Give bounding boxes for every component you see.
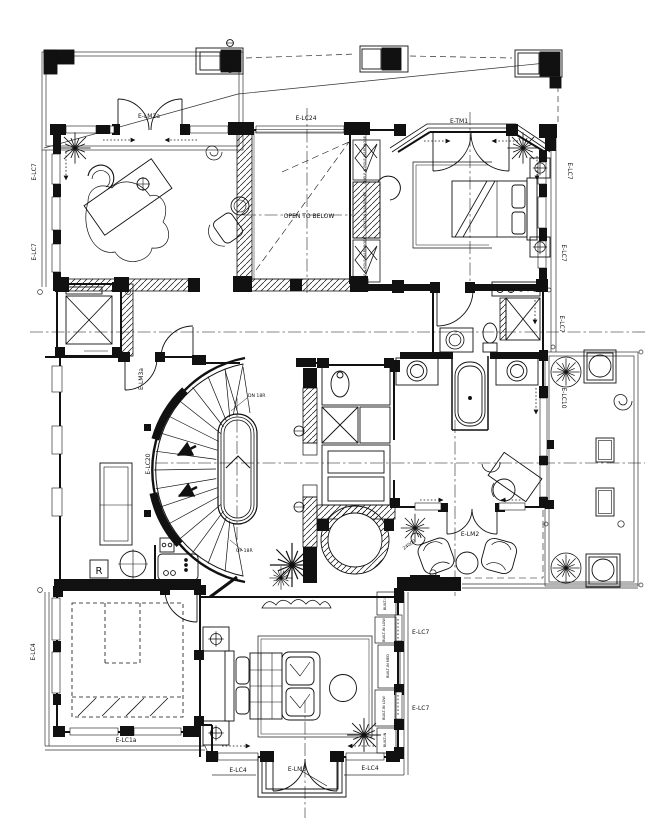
tag-lc7: E-LC7 <box>560 244 567 261</box>
labels: E-LM2a E-LC24 E-TM1 E-LC7 E-LC7 E-LC7 E-… <box>30 113 573 774</box>
round-feature <box>321 506 389 574</box>
bottom-left-room <box>72 603 183 717</box>
plant-icon <box>59 132 90 163</box>
tag-lc1a: E-LC1a <box>116 737 137 744</box>
windows <box>52 126 547 760</box>
corridor-door <box>161 326 193 358</box>
exterior-boundary <box>38 52 643 775</box>
refrigerator-label: R <box>96 566 103 577</box>
tag-lc4: E-LC4 <box>361 765 378 772</box>
kitchenette <box>90 463 198 580</box>
tag-lc7: E-LC7 <box>31 163 38 180</box>
cabinet-label: BUILT-IN <box>383 595 387 610</box>
stairs-down-note: DN 18R <box>248 393 266 399</box>
elevator <box>66 287 112 351</box>
terrace-furniture <box>415 350 624 587</box>
tag-lc7: E-LC7 <box>31 243 38 260</box>
tag-lc4: E-LC4 <box>30 643 37 660</box>
tag-lc24: E-LC24 <box>295 115 316 122</box>
wicker-chair <box>415 535 456 576</box>
upper-columns <box>44 40 562 88</box>
wicker-chair <box>479 536 518 575</box>
study-furniture <box>84 146 249 262</box>
tag-lc4: E-LC4 <box>229 767 246 774</box>
palm-plant-icon <box>551 553 581 583</box>
wardrobe-label: SHELF & POLE WARDROBE <box>363 236 367 285</box>
fern-icon <box>269 566 292 589</box>
plant-icon <box>347 718 381 752</box>
small-bath <box>440 282 540 352</box>
master-bedroom-furniture <box>353 140 550 282</box>
stairs-up-note: UP 18R <box>236 548 253 554</box>
hatched-walls <box>55 128 506 547</box>
doors <box>118 99 509 791</box>
tag-hall-door: E-LM3a <box>138 368 145 390</box>
floor-plan-page: E-LM2a E-LC24 E-TM1 E-LC7 E-LC7 E-LC7 E-… <box>0 0 650 840</box>
cabinet-label: BUILT-IN LOW <box>382 696 386 720</box>
wardrobe-label: BUILT-IN WARDROBE <box>363 191 367 229</box>
fern-icon <box>270 543 314 587</box>
tag-study-door: E-LM2a <box>138 113 160 120</box>
tag-bay-window: E-TM1 <box>450 118 468 125</box>
cabinet-label: BUILT-IN MED <box>386 654 390 678</box>
tag-balcony-doors: E-LM3 <box>288 766 306 773</box>
closets <box>322 365 390 505</box>
tag-lc7: E-LC7 <box>566 162 573 179</box>
master-bath <box>396 358 538 426</box>
tag-lc20: E-LC20 <box>145 453 152 474</box>
tag-lc7: E-LC7 <box>412 629 429 636</box>
cabinet-label: BUILT-IN LOW <box>382 618 386 642</box>
tag-lc7: E-LC7 <box>558 315 565 332</box>
wardrobe-label: SHELF & POLE WARDROBE <box>363 135 367 184</box>
tag-terrace-doors: E-LM2 <box>461 531 479 538</box>
dimension-label: 24000 <box>402 538 417 551</box>
floor-plan-drawing: E-LM2a E-LC24 E-TM1 E-LC7 E-LC7 E-LC7 E-… <box>0 0 650 840</box>
palm-plant-icon <box>551 357 581 387</box>
open-to-below-note: OPEN TO BELOW <box>284 213 335 220</box>
bath-door <box>437 290 473 326</box>
tag-lc7: E-LC7 <box>412 705 429 712</box>
tag-lc10: E-LC10 <box>560 387 567 408</box>
plant-icon <box>507 132 538 163</box>
spiral-icon <box>614 395 632 411</box>
bay-double-door <box>433 133 509 171</box>
sitting-room-furniture <box>482 452 542 501</box>
cabinet-label: BUILT-IN <box>383 732 387 747</box>
